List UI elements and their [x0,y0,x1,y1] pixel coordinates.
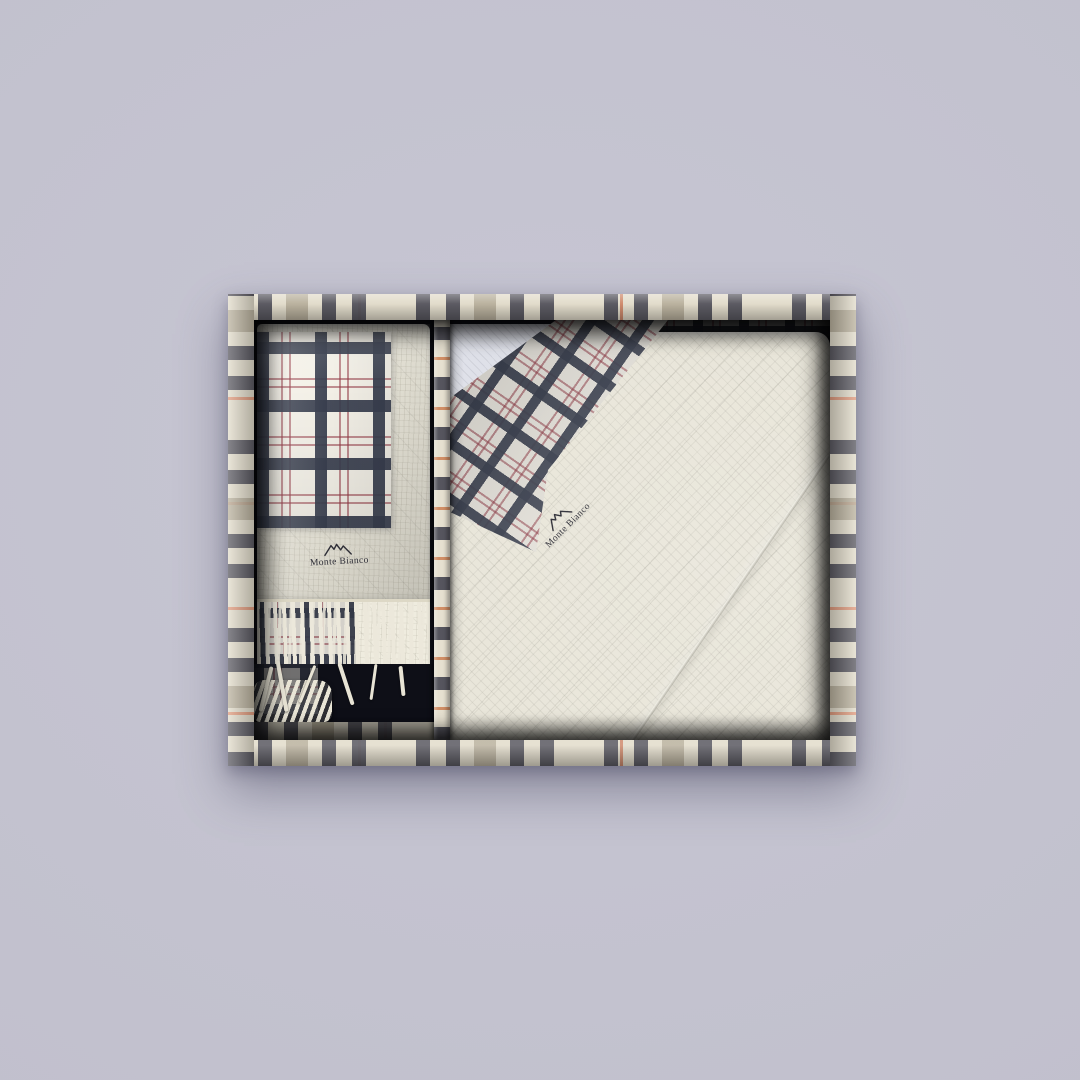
box-frame-right [830,294,856,766]
right-compartment: Monte Bianco [450,320,830,740]
scarf-fringe-band [257,602,430,664]
tassel [370,664,378,700]
box-frame-left [228,294,254,766]
compartment-floor-dark [254,664,434,740]
box-frame-bottom [228,740,856,766]
compartment-divider [434,320,450,740]
mountain-peaks-icon [322,541,355,557]
left-compartment: Monte Bianco [254,320,434,740]
tassel [398,666,405,696]
scarf-plaid-panel [257,332,391,528]
fringe-strands [257,602,430,664]
product-photo-background: Monte Bianco [0,0,1080,1080]
gift-box: Monte Bianco [228,294,856,766]
box-floor-plaid [254,722,434,740]
box-frame-top [228,294,856,320]
box-interior: Monte Bianco [254,320,830,740]
tassel [337,662,354,705]
